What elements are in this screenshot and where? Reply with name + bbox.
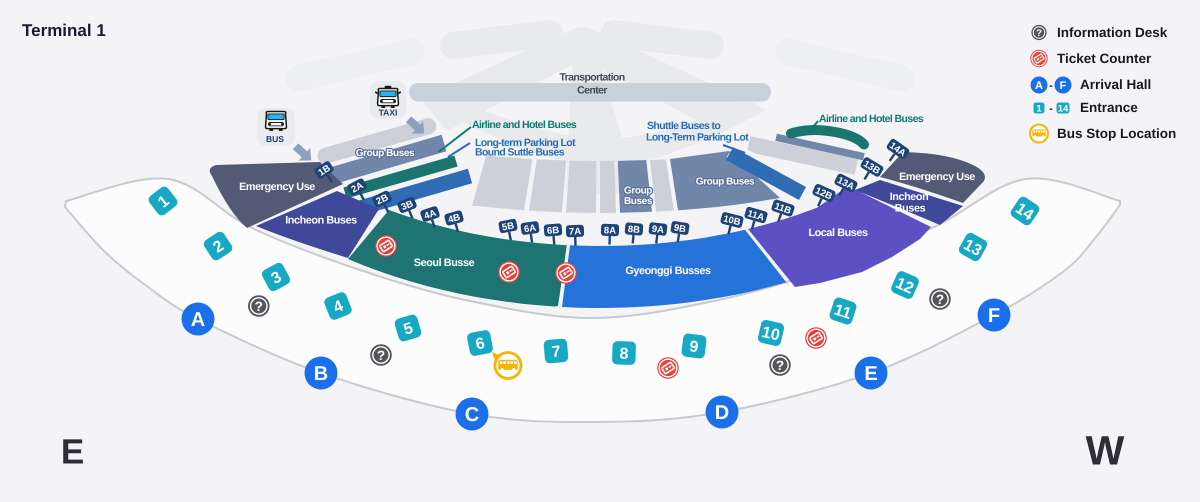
svg-text:B: B [314,363,328,385]
svg-text:9A: 9A [651,224,665,236]
svg-text:Emergency Use: Emergency Use [239,181,315,193]
svg-text:E: E [61,433,84,472]
svg-text:6A: 6A [523,223,537,236]
svg-text:A: A [191,309,205,331]
svg-text:C: C [465,404,479,426]
svg-text:Airline and Hotel Buses: Airline and Hotel Buses [819,113,924,125]
svg-text:?: ? [1036,28,1042,39]
svg-text:Incheon Buses: Incheon Buses [285,215,357,227]
svg-text:Shuttle Buses to: Shuttle Buses to [647,120,720,132]
svg-text:-: - [1049,80,1053,92]
svg-text:5B: 5B [501,220,515,233]
svg-text:Terminal 1: Terminal 1 [22,21,106,40]
svg-text:Center: Center [577,85,607,97]
svg-text:BUS: BUS [266,134,284,144]
svg-text:Emergency Use: Emergency Use [899,171,975,183]
svg-text:1: 1 [1036,104,1042,115]
svg-text:A: A [1035,80,1043,92]
svg-text:-: - [1049,103,1053,115]
svg-text:Transportation: Transportation [559,72,624,84]
svg-text:Group Buses: Group Buses [696,177,755,188]
svg-text:6B: 6B [547,225,560,237]
svg-text:?: ? [377,348,385,363]
svg-text:Local Buses: Local Buses [808,227,868,239]
svg-text:9B: 9B [673,223,687,236]
svg-text:Group: Group [624,186,652,197]
svg-text:Bus Stop Location: Bus Stop Location [1057,126,1176,141]
svg-text:Group Buses: Group Buses [356,148,415,159]
svg-text:W: W [1086,428,1125,474]
svg-text:7A: 7A [569,226,582,237]
svg-text:F: F [1060,80,1067,92]
svg-text:?: ? [776,358,784,373]
svg-text:Buses: Buses [895,203,926,215]
svg-text:Seoul Busse: Seoul Busse [414,257,475,269]
svg-text:8B: 8B [627,224,640,236]
svg-text:Incheon: Incheon [890,191,929,203]
svg-text:Information Desk: Information Desk [1057,25,1168,40]
svg-text:E: E [864,363,877,385]
svg-text:7: 7 [551,343,561,361]
svg-text:8: 8 [619,346,629,363]
svg-text:Gyeonggi Busses: Gyeonggi Busses [625,265,711,277]
svg-text:F: F [988,305,1000,327]
svg-text:TAXI: TAXI [379,108,398,118]
svg-text:Long-Term Parking Lot: Long-Term Parking Lot [646,132,749,144]
svg-text:D: D [715,402,729,424]
svg-text:14: 14 [1058,104,1069,115]
svg-text:?: ? [936,292,944,307]
svg-text:Airline and Hotel Buses: Airline and Hotel Buses [472,119,577,131]
svg-text:?: ? [255,299,263,314]
svg-text:Arrival Hall: Arrival Hall [1080,77,1151,92]
svg-text:Ticket Counter: Ticket Counter [1057,51,1152,66]
svg-text:8A: 8A [604,225,617,236]
svg-text:Buses: Buses [624,196,653,207]
svg-text:Bound Suttle Buses: Bound Suttle Buses [475,147,565,159]
svg-text:Entrance: Entrance [1080,100,1138,115]
